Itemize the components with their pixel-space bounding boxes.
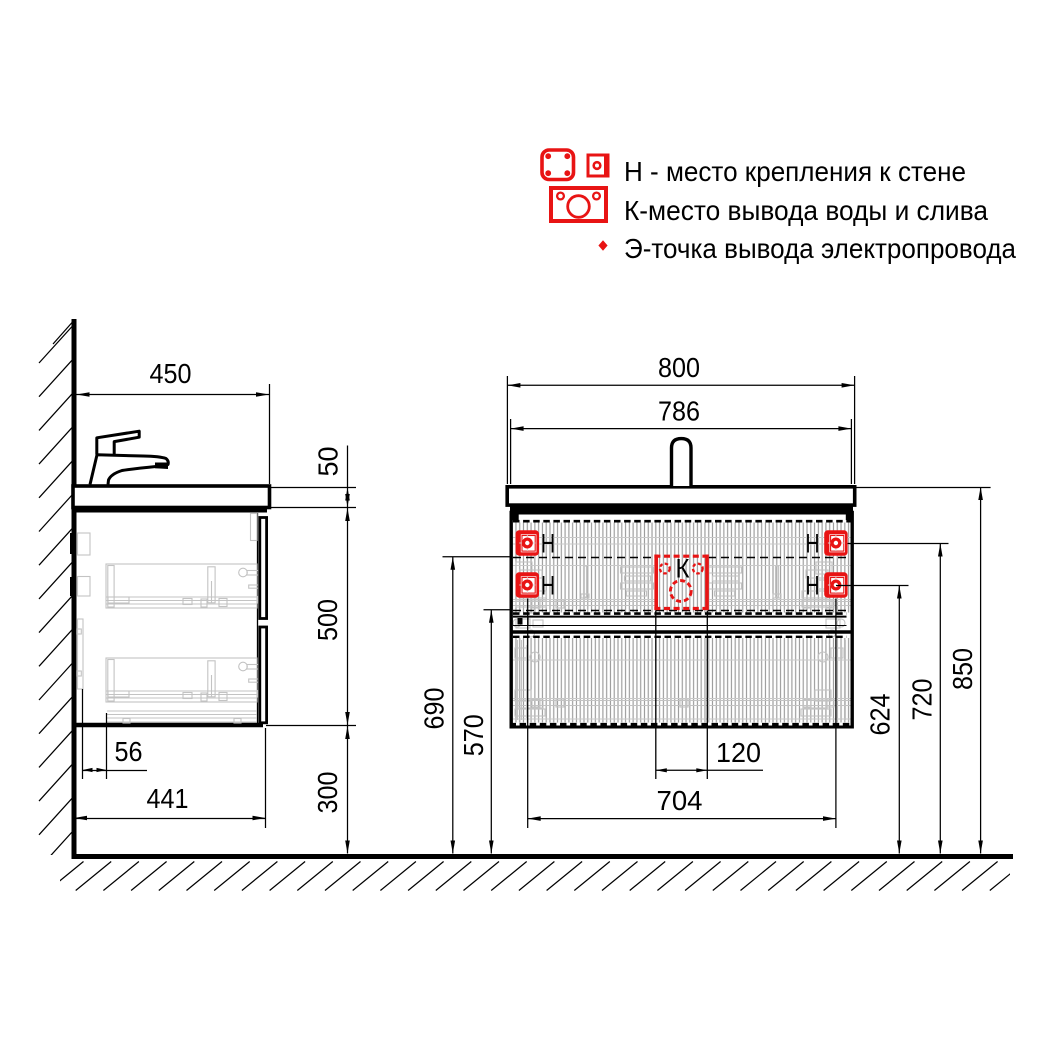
svg-text:570: 570 [458, 714, 489, 756]
svg-text:Н: Н [541, 529, 555, 559]
svg-text:441: 441 [147, 783, 189, 814]
svg-text:704: 704 [657, 785, 703, 816]
svg-text:Н - место крепления к стене: Н - место крепления к стене [624, 156, 966, 187]
svg-text:Н: Н [806, 571, 820, 601]
svg-text:120: 120 [716, 737, 761, 768]
svg-text:50: 50 [313, 447, 344, 477]
svg-text:850: 850 [947, 648, 978, 690]
svg-text:56: 56 [115, 736, 143, 767]
svg-text:690: 690 [419, 688, 450, 730]
svg-text:Н: Н [541, 571, 555, 601]
svg-text:786: 786 [658, 396, 700, 427]
svg-text:800: 800 [658, 352, 700, 383]
svg-text:Э-точка вывода электропровода: Э-точка вывода электропровода [624, 233, 1016, 264]
svg-text:720: 720 [907, 679, 938, 721]
svg-text:624: 624 [865, 694, 896, 736]
svg-text:К-место вывода воды и слива: К-место вывода воды и слива [624, 195, 988, 226]
svg-text:500: 500 [312, 599, 343, 641]
svg-text:Н: Н [806, 529, 820, 559]
svg-text:300: 300 [312, 772, 343, 814]
svg-text:К: К [676, 554, 690, 584]
svg-text:450: 450 [150, 358, 192, 389]
